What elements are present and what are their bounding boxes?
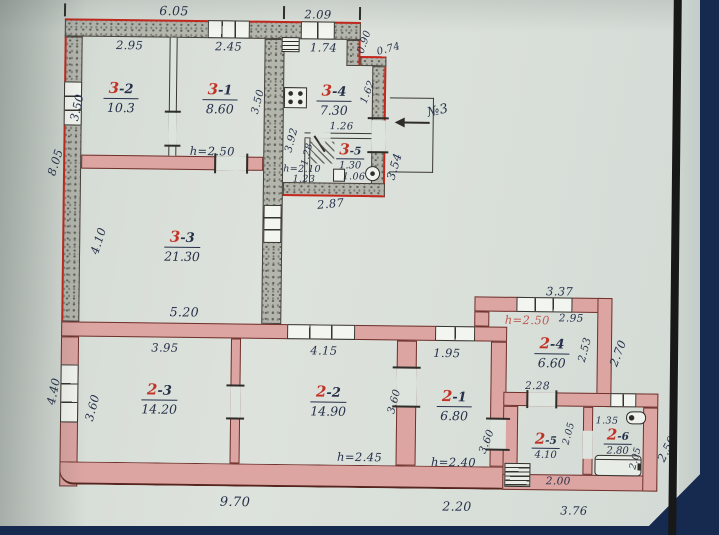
door-jamb-tick xyxy=(526,390,528,408)
wall-b3-left xyxy=(61,36,82,321)
room-label-3-1: 3-1 8.60 xyxy=(202,80,237,116)
door-jamb-tick xyxy=(226,384,244,386)
entrance-label: №3 xyxy=(426,101,450,121)
window-icon-room22-north xyxy=(287,324,355,340)
dim-label: 3.37 xyxy=(546,284,573,298)
dim-label: 3.76 xyxy=(560,503,587,517)
room-label-3-3: 3-3 21.30 xyxy=(164,228,200,264)
dim-label: 3.92 xyxy=(282,127,300,154)
dim-label: 2.00 xyxy=(546,475,571,487)
wall-b3-middle xyxy=(261,39,284,324)
dim-label: 2.05 xyxy=(561,421,577,446)
room-label-2-5: 2-5 4.10 xyxy=(532,430,560,461)
room-label-2-2: 2-2 14.90 xyxy=(310,382,346,418)
dim-label: 3.60 xyxy=(82,393,102,423)
floor-plan-drawing: 3-2 10.3 3-1 8.60 3-4 7.30 3-5 1.30 3-3 … xyxy=(0,0,719,535)
entrance-arrow-head xyxy=(395,117,405,127)
window-icon-room31-top xyxy=(208,20,250,39)
water-heater-icon xyxy=(626,411,646,424)
dim-tick xyxy=(64,3,66,16)
door-jamb-tick xyxy=(164,145,180,147)
door-opening-32-31 xyxy=(168,113,176,146)
door-jamb-tick xyxy=(486,418,510,420)
room-label-2-6: 2-6 2.80 xyxy=(604,425,632,456)
door-jamb-tick xyxy=(226,417,244,419)
dim-label: 5.20 xyxy=(170,304,200,319)
background-bottom xyxy=(0,526,719,535)
door-opening-23-22 xyxy=(230,386,240,418)
door-jamb-tick xyxy=(246,154,248,174)
door-opening-24-25 xyxy=(528,392,556,406)
dim-label: 2.09 xyxy=(304,7,331,21)
height-label: h=2.50 xyxy=(190,144,235,159)
dim-label: 9.70 xyxy=(220,495,251,510)
gas-stove-icon xyxy=(284,87,307,108)
flue-icon xyxy=(282,37,300,52)
door-jamb-tick xyxy=(165,111,181,113)
dim-label: 1.35 xyxy=(596,415,619,426)
window-icon-midwall xyxy=(263,205,281,243)
room-label-2-4: 2-4 6.60 xyxy=(534,334,569,370)
window-icon-room23-left xyxy=(60,364,79,422)
door-jamb-tick xyxy=(555,390,557,408)
entrance-arrow-shaft xyxy=(404,122,430,124)
window-icon-room21-north xyxy=(435,326,475,341)
door-jamb-tick xyxy=(393,366,421,368)
dim-label: 3.95 xyxy=(151,340,178,354)
dim-label: 1.95 xyxy=(433,346,460,360)
dim-label: 0.74 xyxy=(376,41,402,58)
dim-label: 2.95 xyxy=(559,312,584,324)
dim-label: 2.87 xyxy=(316,195,344,211)
dim-label: 6.05 xyxy=(159,3,189,18)
dim-tick xyxy=(283,6,285,19)
dim-label: 1.23 xyxy=(293,174,316,185)
dim-label: 1.26 xyxy=(330,121,354,132)
door-jamb-tick xyxy=(368,117,389,119)
dim-label: 2.20 xyxy=(442,499,472,514)
room-label-3-5: 3-5 1.30 xyxy=(336,140,364,171)
dim-tick xyxy=(359,7,361,20)
dim-label: 2.95 xyxy=(116,38,143,52)
room-label-2-3: 2-3 14.20 xyxy=(141,380,177,416)
floor-plan-photo: 3-2 10.3 3-1 8.60 3-4 7.30 3-5 1.30 3-3 … xyxy=(0,0,719,535)
door-opening-25-26 xyxy=(583,431,593,459)
water-heater-round-icon xyxy=(365,166,380,181)
dim-label: 4.10 xyxy=(87,226,109,256)
door-jamb-tick xyxy=(367,151,388,153)
height-label: h=2.45 xyxy=(337,450,382,465)
door-opening-entrance-3 xyxy=(371,120,385,152)
dim-label: 2.28 xyxy=(525,380,550,392)
dim-label: 1.06 xyxy=(343,171,366,182)
dim-label: 1.74 xyxy=(310,40,337,54)
page-edge-strip xyxy=(679,0,701,535)
dim-label: 4.15 xyxy=(310,343,337,357)
wall-b3-step-horizontal xyxy=(360,56,386,66)
window-icon-room26-top xyxy=(610,393,636,407)
room-label-2-1: 2-1 6.80 xyxy=(437,387,472,423)
room-label-3-2: 3-2 10.3 xyxy=(103,79,138,115)
wall-24-left xyxy=(474,311,489,326)
background-right xyxy=(700,0,719,535)
height-label: h=2.40 xyxy=(431,455,476,470)
window-icon-room24-top xyxy=(516,297,572,313)
dim-label: 2.45 xyxy=(215,39,242,53)
dim-label: 2.53 xyxy=(576,336,594,363)
height-label: h=2.50 xyxy=(505,313,550,328)
solid-fuel-stove-icon xyxy=(504,463,530,487)
window-icon-room34-top xyxy=(301,21,335,39)
room-label-3-4: 3-4 7.30 xyxy=(316,81,351,117)
